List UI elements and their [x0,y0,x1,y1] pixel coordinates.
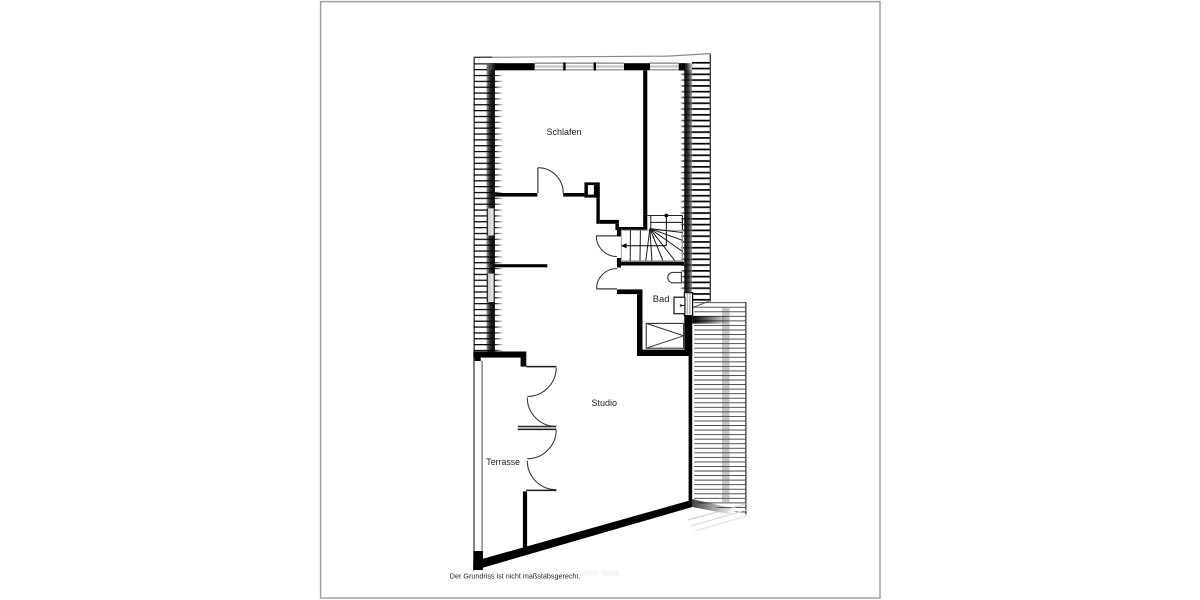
svg-text:Studio: Studio [592,398,618,408]
svg-text:Bad: Bad [653,293,670,304]
svg-text:Terrasse: Terrasse [486,457,520,467]
svg-text:Der Grundriss ist nicht maßsta: Der Grundriss ist nicht maßstabsgerecht. [450,571,581,580]
svg-text:Schlafen: Schlafen [547,127,582,137]
